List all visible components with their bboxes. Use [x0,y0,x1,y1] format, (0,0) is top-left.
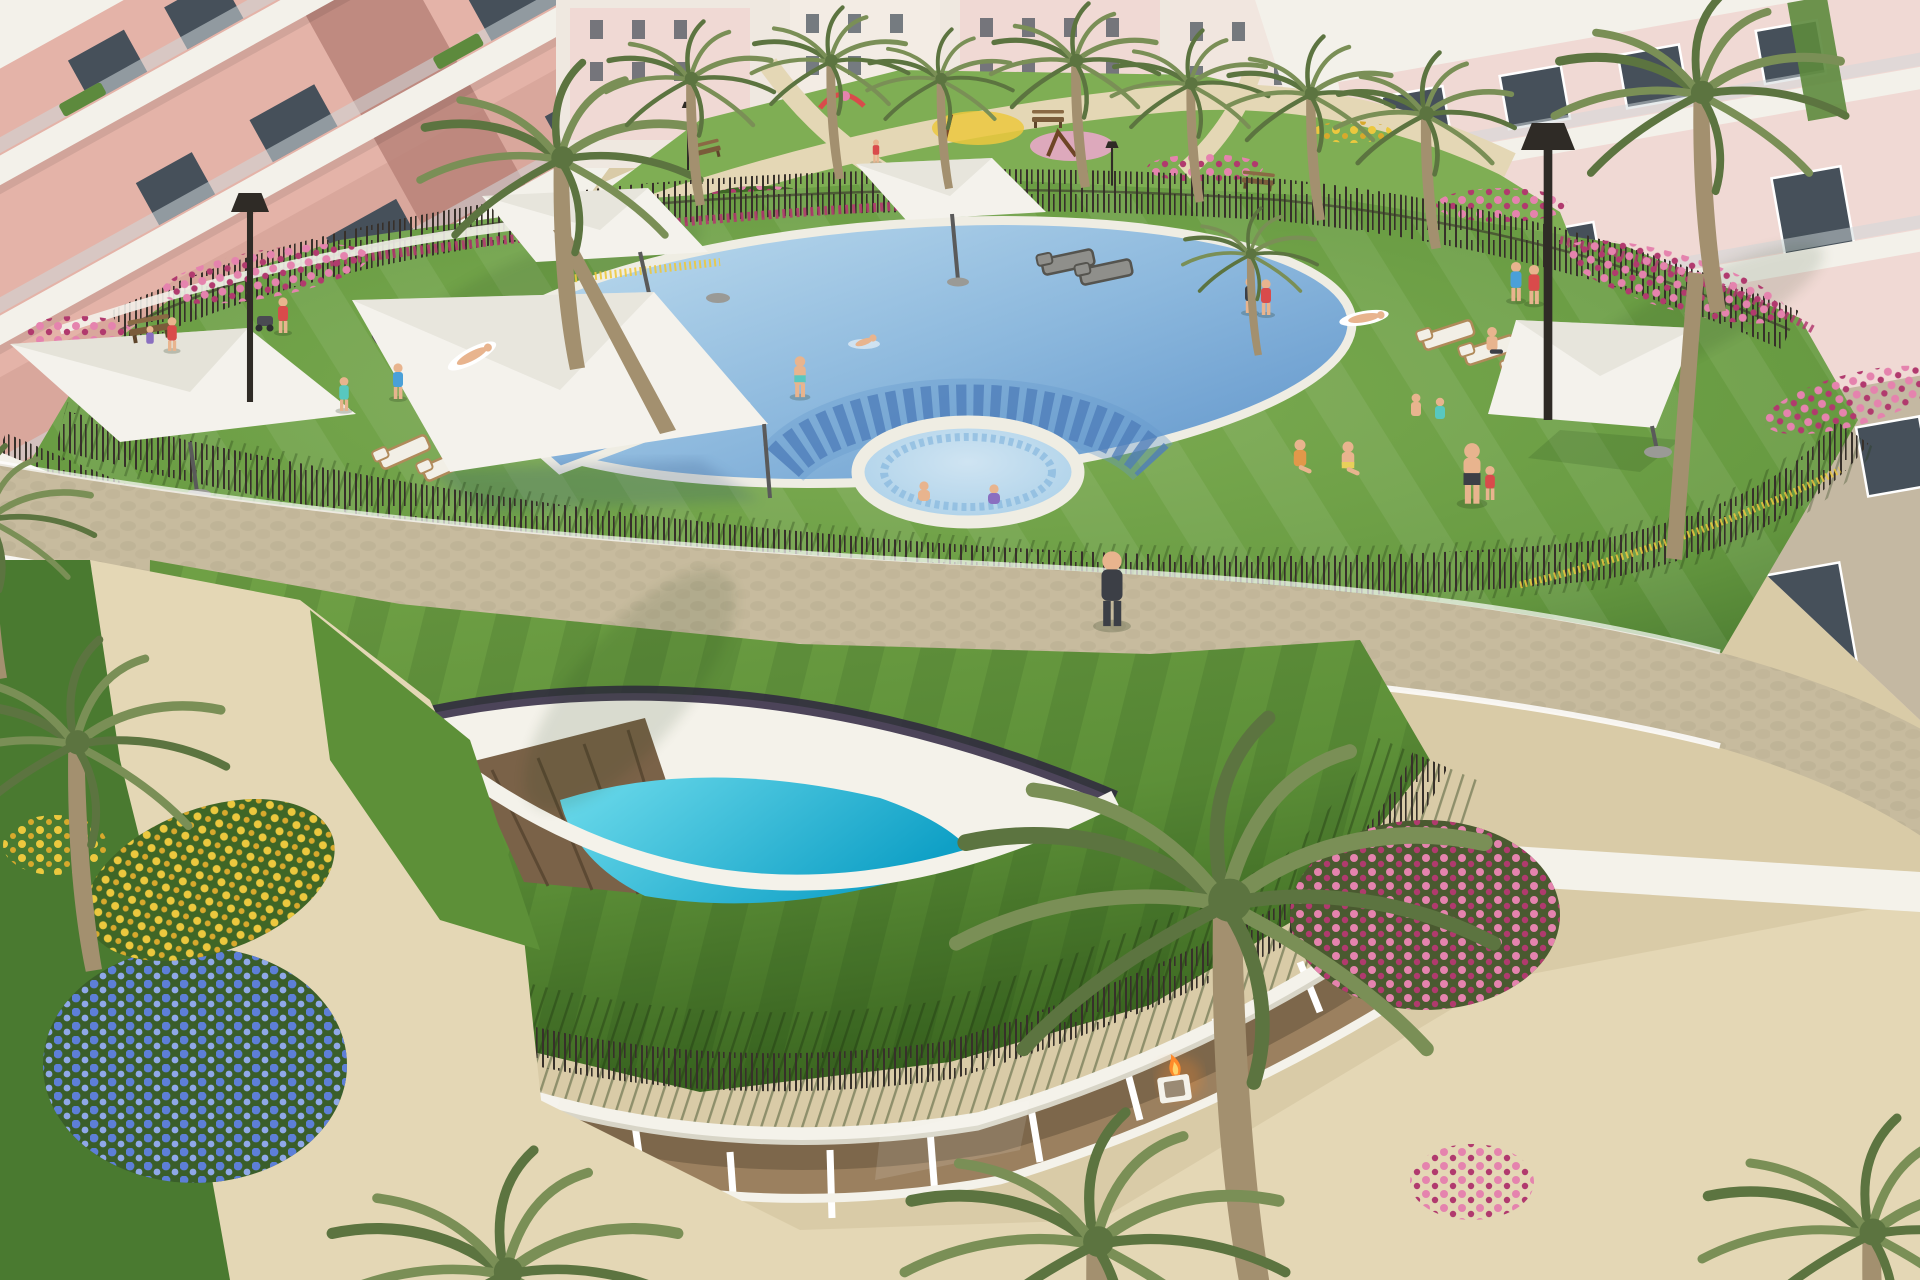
flower-bed-blue [43,947,347,1183]
jacuzzi [858,422,1078,522]
resort-render: Aerial 3D architectural rendering of a M… [0,0,1920,1280]
jacuzzi-person-2 [988,484,1000,504]
play-circle-pink [1030,131,1114,161]
scene-canvas [0,0,1920,1280]
jacuzzi-person-1 [918,481,930,501]
